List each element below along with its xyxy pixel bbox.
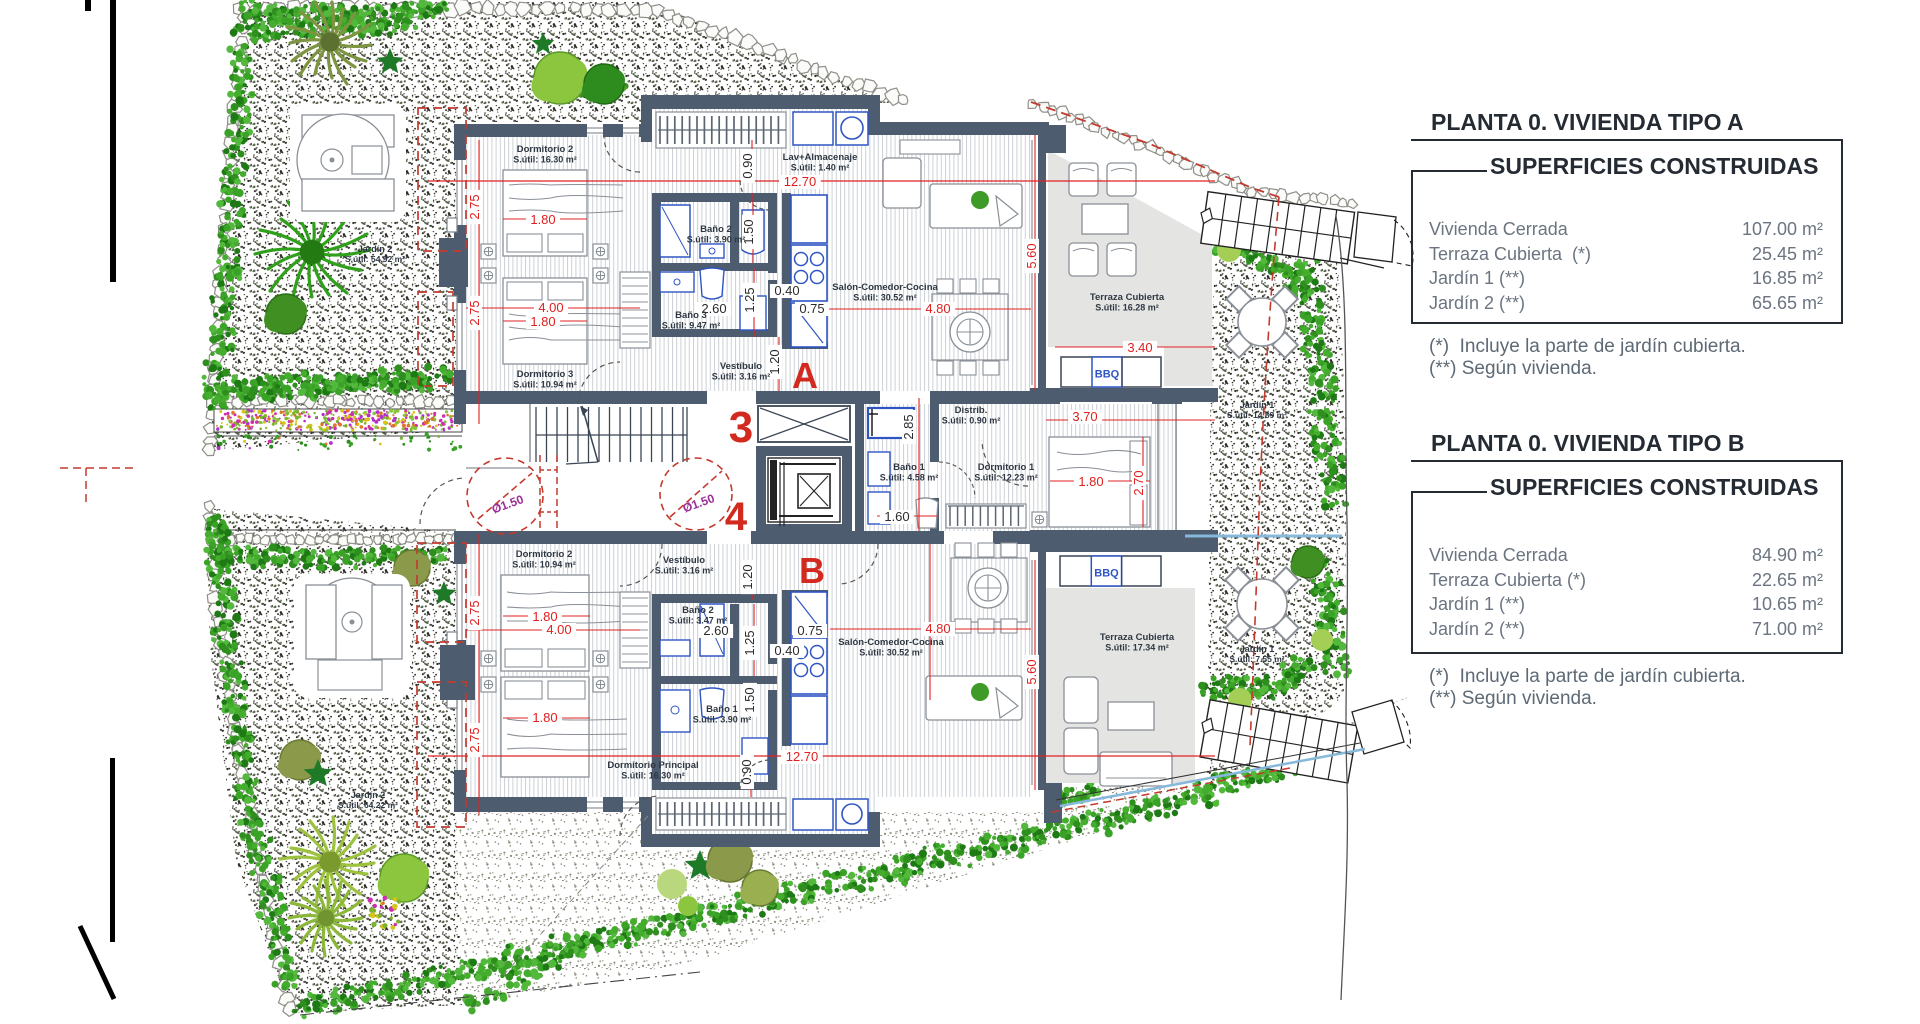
svg-text:Terraza Cubierta: Terraza Cubierta: [1090, 292, 1165, 303]
svg-text:Jardín 2: Jardín 2: [358, 244, 393, 254]
svg-text:Dormitorio 1: Dormitorio 1: [978, 462, 1035, 473]
svg-text:1.25: 1.25: [742, 287, 757, 312]
svg-text:Baño 2: Baño 2: [682, 605, 714, 616]
svg-text:2.75: 2.75: [467, 727, 482, 752]
svg-text:5.60: 5.60: [1024, 659, 1039, 684]
svg-text:S.útil: 10.94 m²: S.útil: 10.94 m²: [512, 560, 576, 570]
svg-text:A: A: [792, 355, 818, 396]
svg-text:BBQ: BBQ: [1094, 567, 1119, 579]
svg-text:0.40: 0.40: [774, 643, 799, 658]
svg-text:4.00: 4.00: [546, 622, 571, 637]
svg-text:S.útil: 3.90 m²: S.útil: 3.90 m²: [693, 715, 752, 725]
svg-text:Distrib.: Distrib.: [955, 405, 988, 416]
svg-text:2.75: 2.75: [467, 600, 482, 625]
svg-text:S.útil: 10.94 m²: S.útil: 10.94 m²: [513, 380, 577, 390]
svg-text:1.20: 1.20: [740, 564, 755, 589]
svg-text:S.útil: 16.30 m²: S.útil: 16.30 m²: [513, 155, 577, 165]
svg-text:0.40: 0.40: [774, 283, 799, 298]
svg-text:S.útil: 12.23 m²: S.útil: 12.23 m²: [974, 473, 1038, 483]
svg-text:4.00: 4.00: [538, 300, 563, 315]
svg-text:S.útil: 54.92 m²: S.útil: 54.92 m²: [345, 254, 405, 264]
svg-text:S.útil: 7.55 m²: S.útil: 7.55 m²: [1229, 654, 1284, 664]
svg-text:0.90: 0.90: [740, 153, 755, 178]
svg-text:B: B: [799, 550, 825, 591]
svg-text:1.80: 1.80: [532, 710, 557, 725]
svg-text:2.85: 2.85: [901, 414, 916, 439]
svg-text:S.útil: 3.47 m²: S.útil: 3.47 m²: [669, 616, 728, 626]
svg-text:0.75: 0.75: [799, 301, 824, 316]
svg-text:Dormitorio Principal: Dormitorio Principal: [607, 760, 698, 771]
svg-text:1.50: 1.50: [742, 687, 757, 712]
svg-text:4.80: 4.80: [925, 301, 950, 316]
svg-text:1.25: 1.25: [742, 630, 757, 655]
svg-text:Vestíbulo: Vestíbulo: [720, 361, 762, 372]
svg-text:1.60: 1.60: [884, 509, 909, 524]
svg-text:S.útil: 4.58 m²: S.útil: 4.58 m²: [880, 473, 939, 483]
svg-text:Jardín 1: Jardín 1: [1240, 400, 1275, 410]
svg-text:0.75: 0.75: [797, 623, 822, 638]
svg-text:2.75: 2.75: [467, 300, 482, 325]
svg-text:Vestíbulo: Vestíbulo: [663, 555, 705, 566]
svg-text:1.80: 1.80: [530, 212, 555, 227]
svg-text:S.útil: 0.90 m²: S.útil: 0.90 m²: [942, 416, 1001, 426]
svg-text:Baño 1: Baño 1: [893, 462, 925, 473]
svg-text:4: 4: [725, 495, 748, 539]
svg-text:S.útil: 16.30 m²: S.útil: 16.30 m²: [621, 771, 685, 781]
svg-text:S.útil: 9.47 m²: S.útil: 9.47 m²: [662, 321, 721, 331]
svg-text:Jardín 1: Jardín 1: [1240, 644, 1275, 654]
svg-text:12.70: 12.70: [784, 174, 817, 189]
svg-text:S.útil: 14.89 m²: S.útil: 14.89 m²: [1227, 410, 1287, 420]
svg-text:S.útil: 16.28 m²: S.útil: 16.28 m²: [1095, 303, 1159, 313]
svg-text:3.40: 3.40: [1127, 340, 1152, 355]
svg-text:BBQ: BBQ: [1095, 368, 1120, 380]
svg-text:Baño 3: Baño 3: [675, 310, 707, 321]
svg-text:S.útil: 3.90 m²: S.útil: 3.90 m²: [687, 235, 746, 245]
svg-text:S.útil: 17.34 m²: S.útil: 17.34 m²: [1105, 643, 1169, 653]
svg-text:3.70: 3.70: [1072, 409, 1097, 424]
svg-text:S.útil: 3.16 m²: S.útil: 3.16 m²: [712, 372, 771, 382]
svg-text:S.útil: 1.40 m²: S.útil: 1.40 m²: [791, 163, 850, 173]
svg-text:S.útil: 64.22 m²: S.útil: 64.22 m²: [338, 800, 398, 810]
svg-text:1.80: 1.80: [1078, 474, 1103, 489]
svg-text:Baño 2: Baño 2: [700, 224, 732, 235]
svg-text:S.útil: 30.52 m²: S.útil: 30.52 m²: [853, 293, 917, 303]
svg-text:4.80: 4.80: [925, 621, 950, 636]
svg-text:S.útil: 30.52 m²: S.útil: 30.52 m²: [859, 648, 923, 658]
svg-text:Baño 1: Baño 1: [706, 704, 738, 715]
svg-text:Salón-Comedor-Cocina: Salón-Comedor-Cocina: [838, 637, 944, 648]
svg-text:2.75: 2.75: [467, 194, 482, 219]
svg-text:Salón-Comedor-Cocina: Salón-Comedor-Cocina: [832, 282, 938, 293]
svg-text:2.70: 2.70: [1131, 470, 1146, 495]
svg-text:Dormitorio 2: Dormitorio 2: [516, 549, 572, 560]
svg-text:3: 3: [729, 403, 753, 452]
svg-text:Jardín 2: Jardín 2: [351, 790, 386, 800]
svg-text:Lav+Almacenaje: Lav+Almacenaje: [783, 152, 858, 163]
svg-text:5.60: 5.60: [1024, 243, 1039, 268]
svg-text:Dormitorio 3: Dormitorio 3: [517, 369, 573, 380]
svg-text:Terraza Cubierta: Terraza Cubierta: [1100, 632, 1175, 643]
svg-text:S.útil: 3.16 m²: S.útil: 3.16 m²: [655, 566, 714, 576]
svg-text:1.80: 1.80: [530, 314, 555, 329]
svg-text:12.70: 12.70: [786, 749, 819, 764]
svg-text:Dormitorio 2: Dormitorio 2: [517, 144, 573, 155]
